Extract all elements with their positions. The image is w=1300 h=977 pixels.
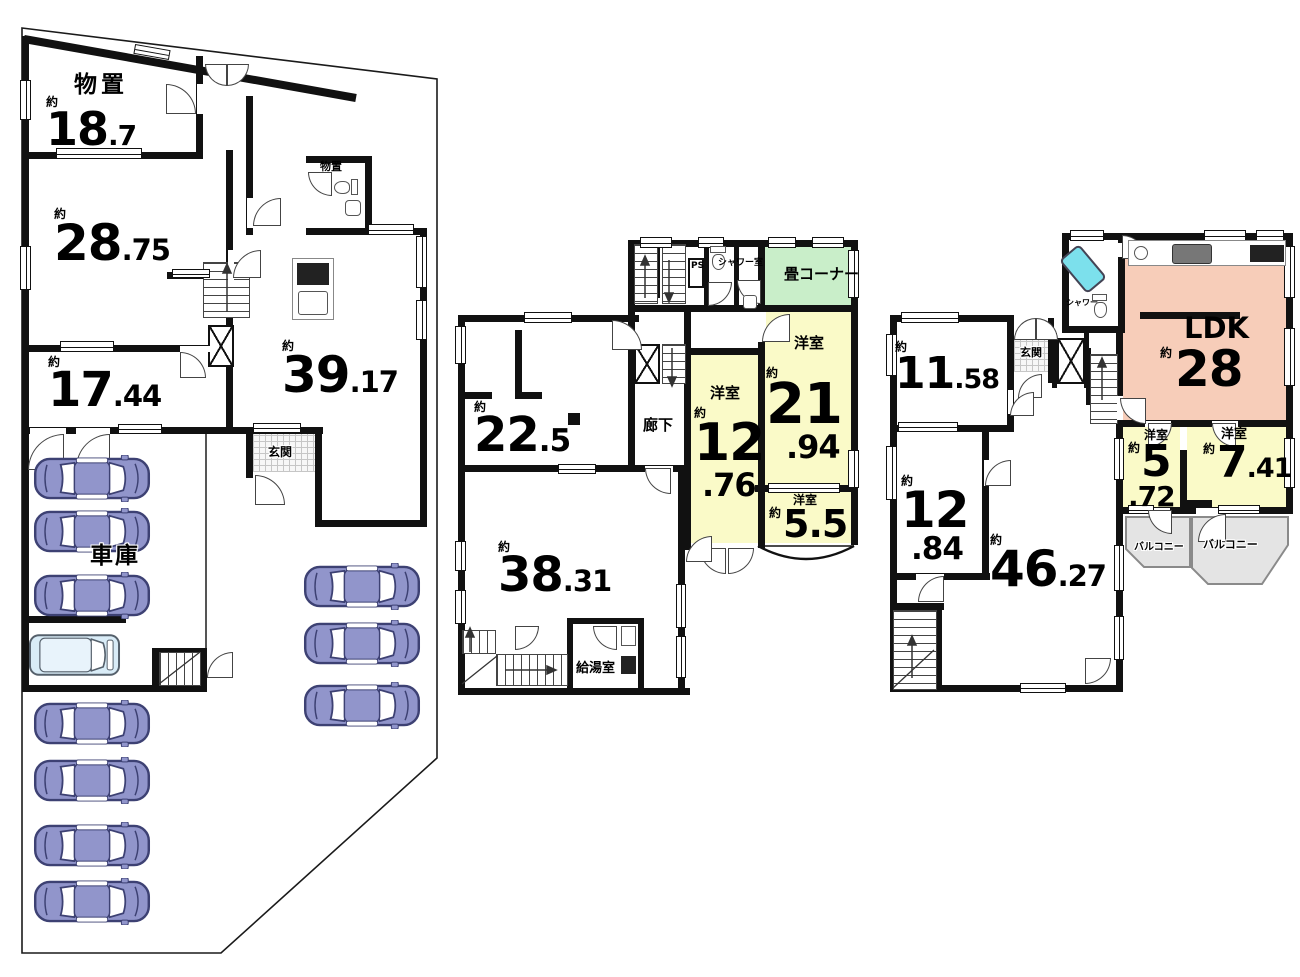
room-label-741: 洋室 約7.41 [1203,428,1291,483]
car-icon [33,572,151,619]
door-arc [180,352,206,378]
wall [684,305,691,550]
room-label-storage-name: 物置 [74,74,128,97]
wall [684,348,765,355]
room-label-entrance-right: 玄関 [1020,347,1042,358]
elevator-icon [208,325,234,367]
window [676,584,686,628]
wall [982,425,989,580]
room-label-corridor: 廊下 [643,418,673,433]
wall [315,430,322,527]
stairs-icon [462,630,496,654]
wall [315,520,427,527]
door-arc [253,198,281,226]
window [1114,616,1124,660]
door-arc [205,64,227,86]
door-arc [1148,510,1172,534]
room-label-225: 約 22.5 [474,401,570,457]
window [676,636,686,678]
wall [1062,233,1069,333]
door-arc [728,548,754,574]
appliance-icon [621,656,636,674]
room-label-3831: 約 38.31 [498,541,611,597]
room-label-3917: 約 39.17 [282,340,398,398]
wall [246,430,253,478]
room-label-shower-middle: シャワー室 [718,259,763,268]
room-label-balcony-left: バルコニー [1134,543,1184,553]
wall-opening [180,346,210,352]
window [416,300,427,340]
wall [515,330,522,399]
washbasin-icon [743,295,757,309]
window [1020,683,1066,693]
annotation-layer [0,0,1300,977]
door-arc [1036,318,1058,340]
wall [22,685,207,692]
door-arc [255,475,285,505]
wall [458,392,492,399]
window [1114,545,1124,591]
wall-opening [197,84,203,114]
sink-icon [621,626,636,646]
van-icon [28,632,121,678]
door-arc [227,64,249,86]
window [640,237,672,248]
window [455,541,466,571]
door-arc [708,282,732,306]
door-arc [612,320,642,350]
sink-basin-icon [1172,244,1212,264]
window [60,341,114,352]
room-label-tatami-corner: 畳コーナー [784,267,859,282]
window [455,590,466,624]
stairs-icon [496,654,568,686]
toilet-icon [334,181,350,194]
wall [515,392,542,399]
stove-icon [297,263,329,285]
stairs-icon [893,610,937,690]
room-label-55: 洋室 約5.5 [769,494,847,541]
stairs-icon [159,652,201,686]
car-icon [303,563,421,610]
washbasin-icon [345,200,361,216]
wall [1062,326,1124,333]
bay-window-arc [758,546,854,559]
wall [200,648,207,692]
window [20,80,31,120]
room-label-4627: 約 46.27 [990,534,1106,592]
car-icon [303,682,421,729]
stove-icon [1250,245,1284,262]
sink-round-icon [1134,246,1148,260]
door-arc [1014,318,1036,340]
door-arc [166,84,196,114]
stairs-icon [662,344,686,384]
car-icon [33,700,151,747]
room-label-entrance-left: 玄関 [268,446,292,458]
toilet-tank-icon [351,179,358,195]
room-label-kitchenette: 給湯室 [576,662,615,675]
elevator-icon [634,344,660,384]
window [1218,505,1260,514]
room-label-balcony-right: バルコニー [1203,539,1258,550]
toilet-tank-icon [710,246,726,253]
window [558,464,596,474]
window [172,269,210,278]
door-arc [308,172,332,196]
room-label-ps: PS [691,262,701,271]
room-label-572: 洋室 約5 .72 [1128,429,1175,509]
window [20,246,31,290]
window [133,44,170,60]
door-arc [593,626,617,650]
car-icon [33,878,151,925]
car-icon [33,822,151,869]
car-icon [303,620,421,667]
car-icon [33,455,151,502]
window [455,326,466,364]
window [1114,438,1124,480]
elevator-icon [1057,338,1085,384]
window [898,422,958,432]
window [1070,230,1104,241]
room-label-storage-small: 物置 [320,161,342,172]
window [524,312,572,323]
room-label-storage-area: 約 18.7 [46,96,136,150]
wall-opening [76,428,110,434]
window [768,237,796,248]
door-arc [645,468,671,494]
window [368,224,414,235]
door-arc [1085,658,1111,684]
room-label-2875: 約 28.75 [54,208,170,266]
window [848,450,859,488]
wall [1180,500,1212,507]
stairs-icon [662,244,686,304]
door-arc [515,626,539,650]
window [416,236,427,288]
stairs-icon [1090,354,1118,424]
wall [567,618,644,624]
site-boundary-layer [0,0,1300,977]
window [768,483,840,493]
room-label-shower-right: シャワー [1066,299,1098,307]
wall [458,688,690,695]
wall [22,36,29,692]
room-label-1276: 洋室 約 12 .76 [694,386,764,500]
window [812,237,844,248]
wall [638,618,644,691]
door-arc [207,652,233,678]
room-label-1284: 約 12 .84 [901,475,969,564]
room-label-ldk: LDK 約28 [1160,314,1249,392]
room-label-1158: 約 11.58 [895,341,999,394]
room-label-garage: 車庫 [90,545,140,568]
stairs-icon [634,244,658,304]
floor-plan-canvas: 物置 約 18.7 約 28.75 約 17.44 約 39.17 玄関 車庫 … [0,0,1300,977]
window [253,423,301,433]
wall [152,648,159,692]
door-arc [233,250,261,278]
wall [734,240,739,307]
window [118,424,162,434]
sink-icon [298,291,328,315]
window [886,446,897,500]
wall [1118,257,1125,333]
room-label-2194: 洋室 約 21 .94 [766,336,842,462]
car-icon [33,757,151,804]
room-label-1744: 約 17.44 [48,356,161,412]
window [901,312,959,323]
window [1284,328,1295,386]
